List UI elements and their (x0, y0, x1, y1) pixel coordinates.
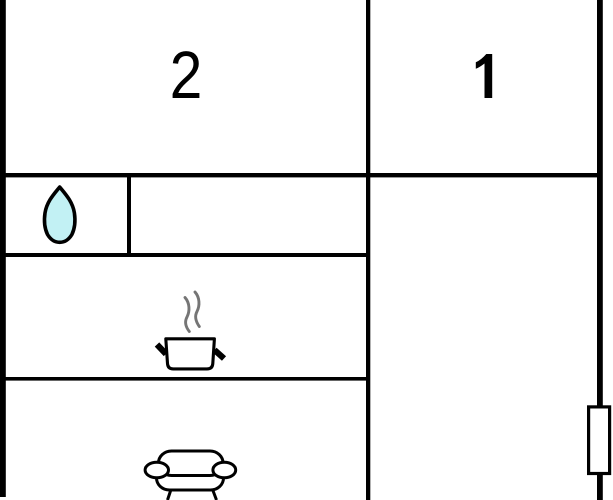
svg-text:2: 2 (170, 39, 203, 113)
